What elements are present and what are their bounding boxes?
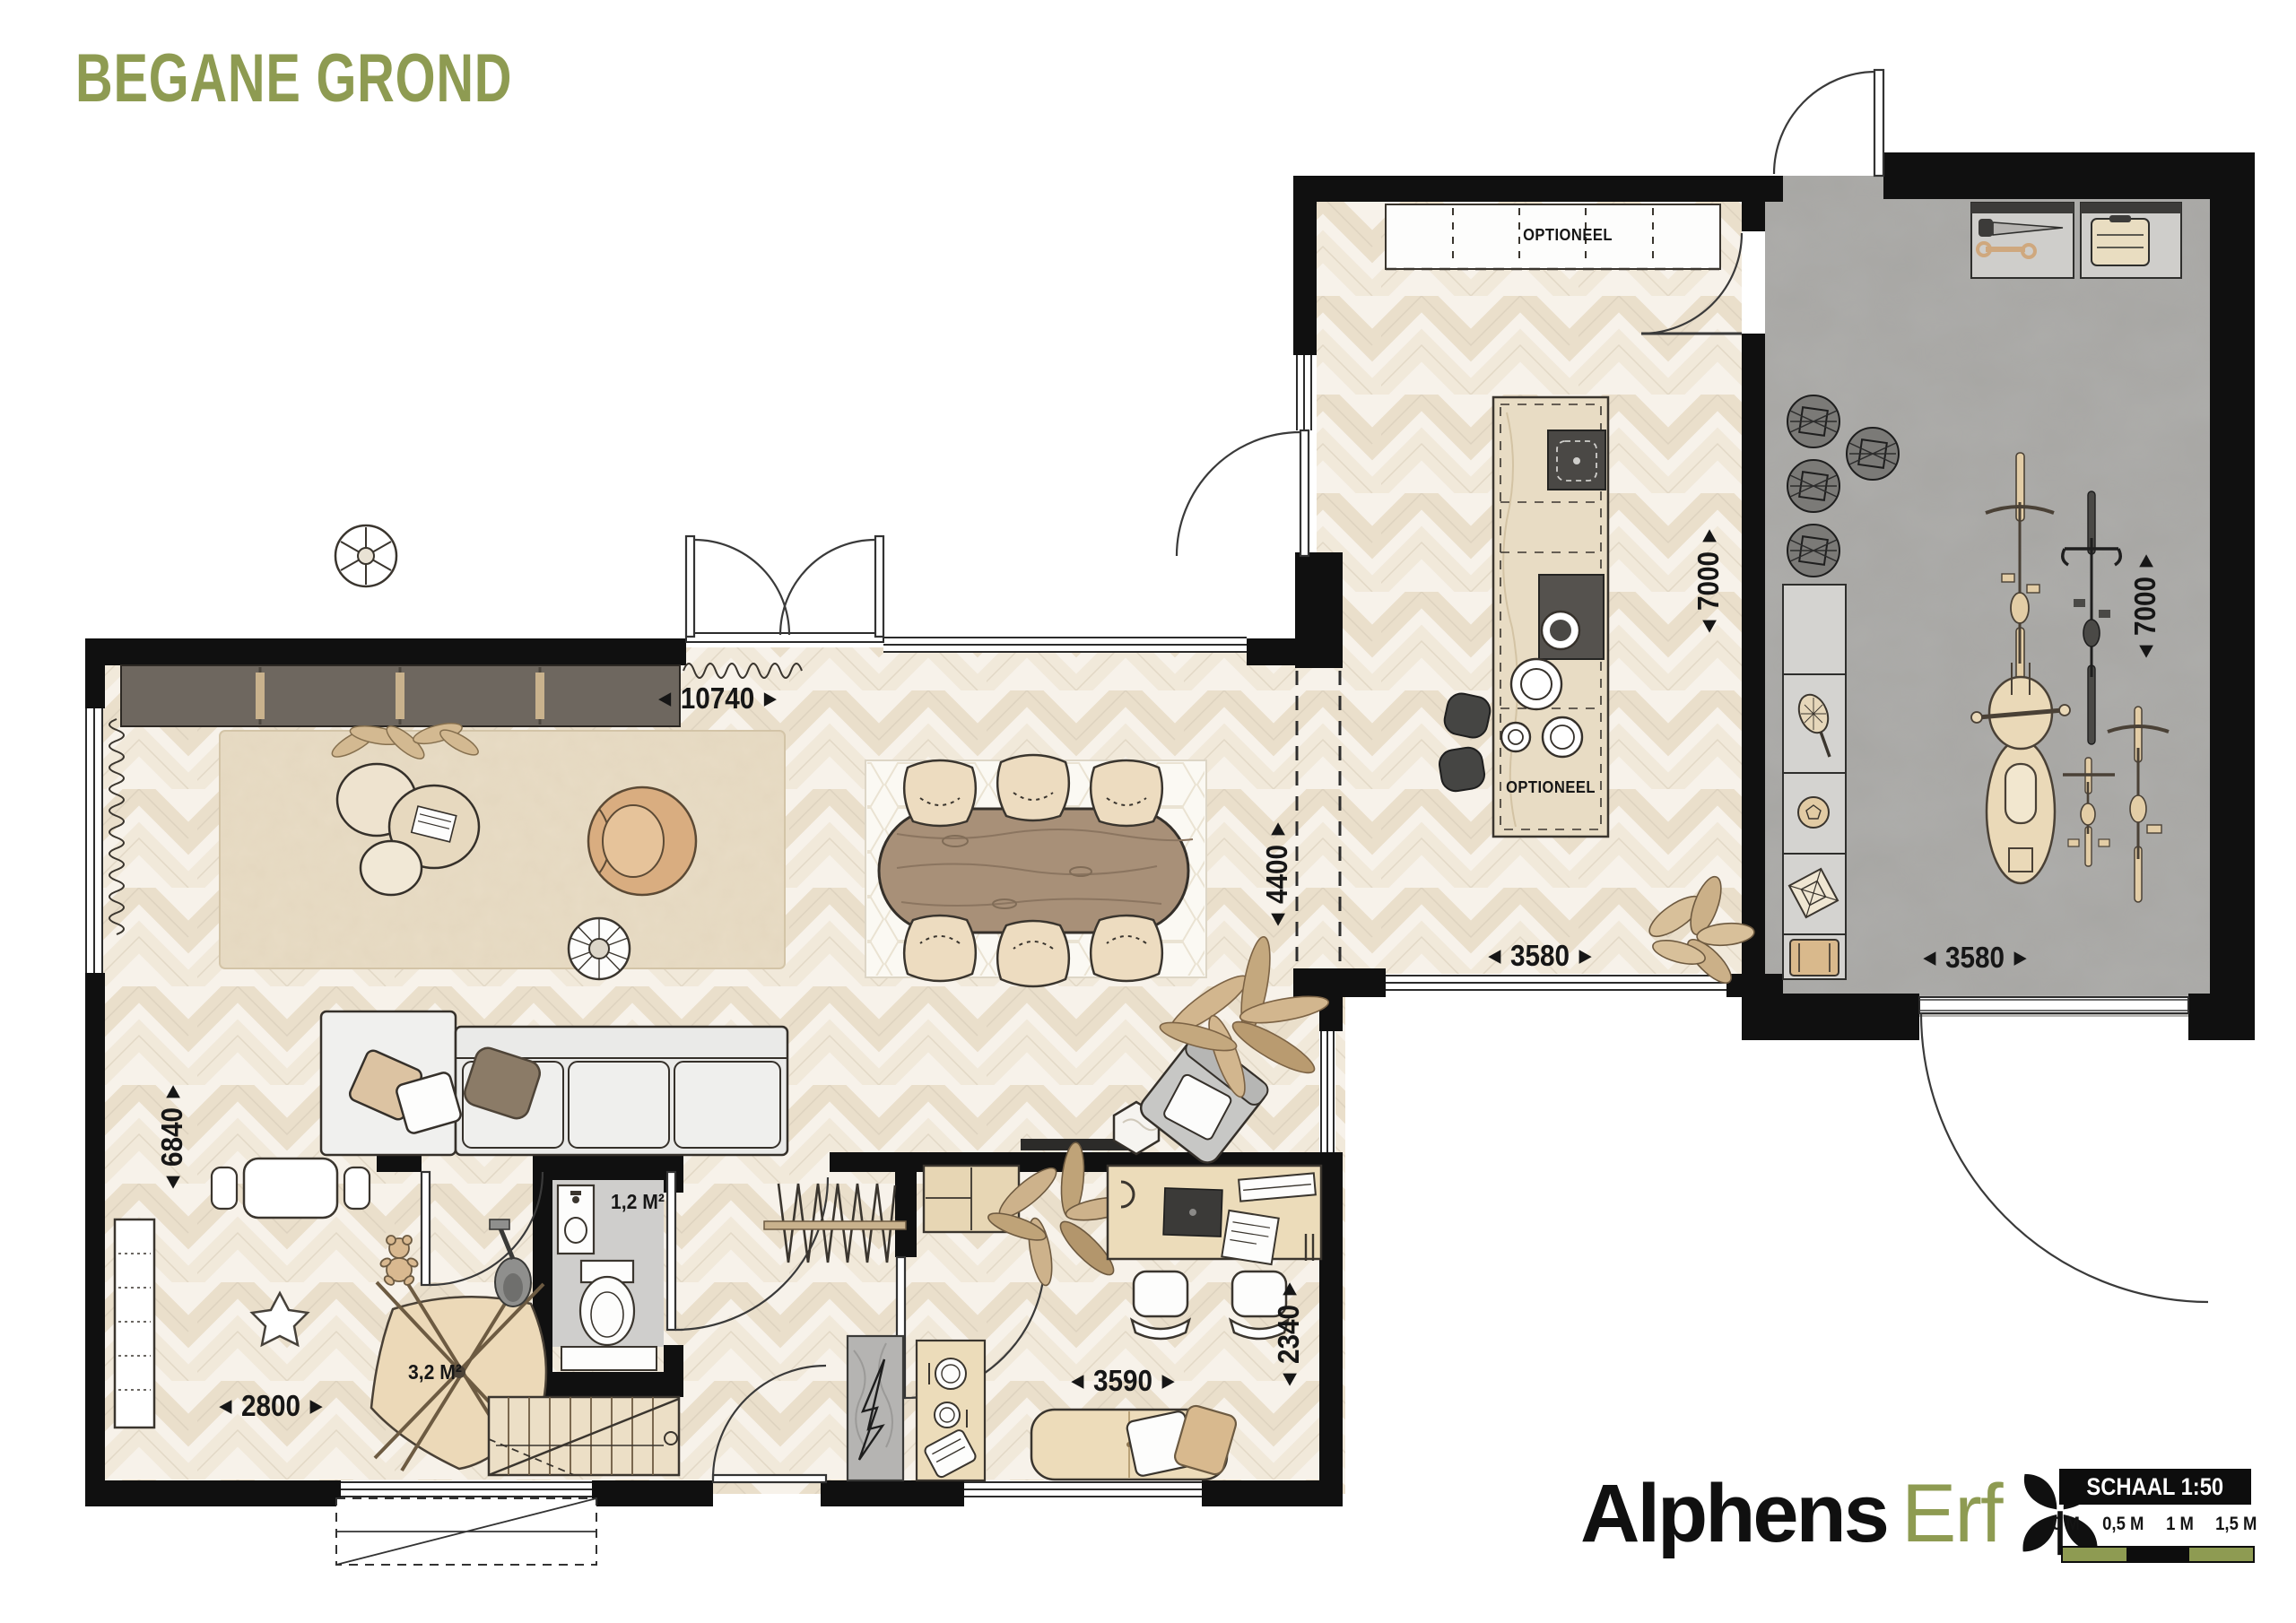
bench [1031,1404,1238,1480]
wire-basket [1847,428,1899,480]
dim-arrow-right-icon: ▶ [164,1086,181,1098]
dim-arrow-left-icon: ◀ [1924,950,1935,967]
window-lounge-right [1319,1031,1335,1152]
dim-kitchen-height: ◀ 7000 ▶ [1691,492,1726,670]
wire-basket [1787,525,1839,577]
sofa [321,1011,787,1155]
window-study-bottom [964,1480,1202,1498]
scale-segment [2126,1548,2190,1561]
scale-title-box: SCHAAL 1:50 [2059,1469,2251,1505]
scale-ticks: 0 M 0,5 M 1 M 1,5 M [2050,1514,2260,1535]
dining-chair [997,755,1069,820]
dim-arrow-right-icon: ▶ [1700,530,1718,542]
dim-living-width: ◀ 10740 ▶ [629,681,806,716]
dim-arrow-right-icon: ▶ [1281,1283,1298,1295]
page-title: BEGANE GROND [75,39,512,117]
scale-segment [2189,1548,2253,1561]
toolbox [2092,215,2149,265]
dim-arrow-left-icon: ◀ [220,1398,231,1415]
dining-chair [904,760,976,826]
armchair [588,787,696,895]
dining-area [879,755,1193,986]
storage-shelves [1783,585,1846,979]
window-kitchen-bottom [1386,974,1726,992]
pantry-cabinet [917,1341,985,1480]
desk-chair [1132,1271,1189,1339]
toolbox-tan [1790,940,1839,976]
window-kitchen-left [1295,355,1313,430]
dining-table [879,809,1193,933]
stairs [489,1397,679,1475]
scale-title: SCHAAL 1:50 [2087,1473,2224,1501]
logo-text-black: Alphens [1580,1467,1887,1561]
french-doors [686,536,883,642]
dim-arrow-left-icon: ◀ [1281,1374,1298,1385]
dim-study-width: ◀ 3590 ▶ [1034,1363,1212,1399]
window-play-bay [336,1480,596,1565]
garage-overhead-door [1919,997,2208,1302]
living-rug [220,731,785,968]
door-front-entrance [1774,70,1883,176]
fan-side-table [569,918,630,979]
dim-play-width: ◀ 2800 ▶ [182,1388,360,1424]
scale-bar [2061,1546,2255,1563]
wire-basket [1787,395,1839,447]
toilet-shelf [561,1347,657,1370]
dining-chair [1091,916,1162,981]
dim-arrow-left-icon: ◀ [2137,646,2154,657]
patio-table [335,525,396,586]
optioneel-counter-label: OPTIONEEL [1501,224,1633,246]
dim-study-height: ◀ 2340 ▶ [1271,1245,1307,1423]
dim-arrow-left-icon: ◀ [1700,621,1718,632]
dim-arrow-right-icon: ▶ [1579,948,1591,965]
brand-logo: Alphens Erf [1580,1467,2102,1561]
bookshelf [115,1219,154,1428]
scale-tick-1: 1 M [2166,1514,2194,1535]
dining-chair [1091,760,1162,826]
logo-text-olive: Erf [1901,1467,2002,1561]
optioneel-island-label: OPTIONEEL [1484,777,1616,798]
electrical-cabinet [848,1336,903,1480]
dim-arrow-right-icon: ▶ [1269,823,1286,835]
dim-garage-width: ◀ 3580 ▶ [1886,940,2064,976]
toilet-bowl [580,1261,634,1345]
dim-arrow-left-icon: ◀ [1072,1373,1083,1390]
dim-arrow-right-icon: ▶ [2137,555,2154,567]
dim-arrow-left-icon: ◀ [1489,948,1500,965]
dining-chair [904,916,976,981]
wire-basket [1787,460,1839,512]
dim-arrow-right-icon: ▶ [310,1398,322,1415]
scale-tick-15: 1,5 M [2216,1514,2257,1535]
toilet-area-label: 1,2 M² [584,1189,691,1214]
stair-area-label: 3,2 M² [381,1359,489,1384]
cooktop [1548,430,1605,490]
scale-tick-05: 0,5 M [2102,1514,2144,1535]
door-living-kitchen [1177,430,1309,556]
dim-arrow-right-icon: ▶ [1162,1373,1174,1390]
dim-arrow-left-icon: ◀ [164,1176,181,1188]
dim-arrow-left-icon: ◀ [1269,914,1286,925]
window-living-top [883,637,1247,653]
dim-arrow-right-icon: ▶ [2014,950,2026,967]
dining-chair [997,921,1069,986]
scale-segment [2063,1548,2126,1561]
sideboard [121,665,680,726]
dim-living-height: ◀ 6840 ▶ [154,1048,190,1226]
bar-stool [1438,746,1487,794]
scale-tick-0: 0 M [2052,1514,2080,1535]
dim-arrow-left-icon: ◀ [659,690,671,707]
dim-garage-height: ◀ 7000 ▶ [2127,517,2163,695]
dim-passage-height: ◀ 4400 ▶ [1259,785,1295,963]
floorplan-page: BEGANE GROND ◀ 10740 ▶ ◀ 6840 ▶ ◀ 2800 ▶… [0,0,2296,1623]
dim-arrow-right-icon: ▶ [764,690,776,707]
dim-kitchen-width: ◀ 3580 ▶ [1451,938,1629,974]
football [1798,797,1829,828]
window-left-wall [85,708,103,973]
